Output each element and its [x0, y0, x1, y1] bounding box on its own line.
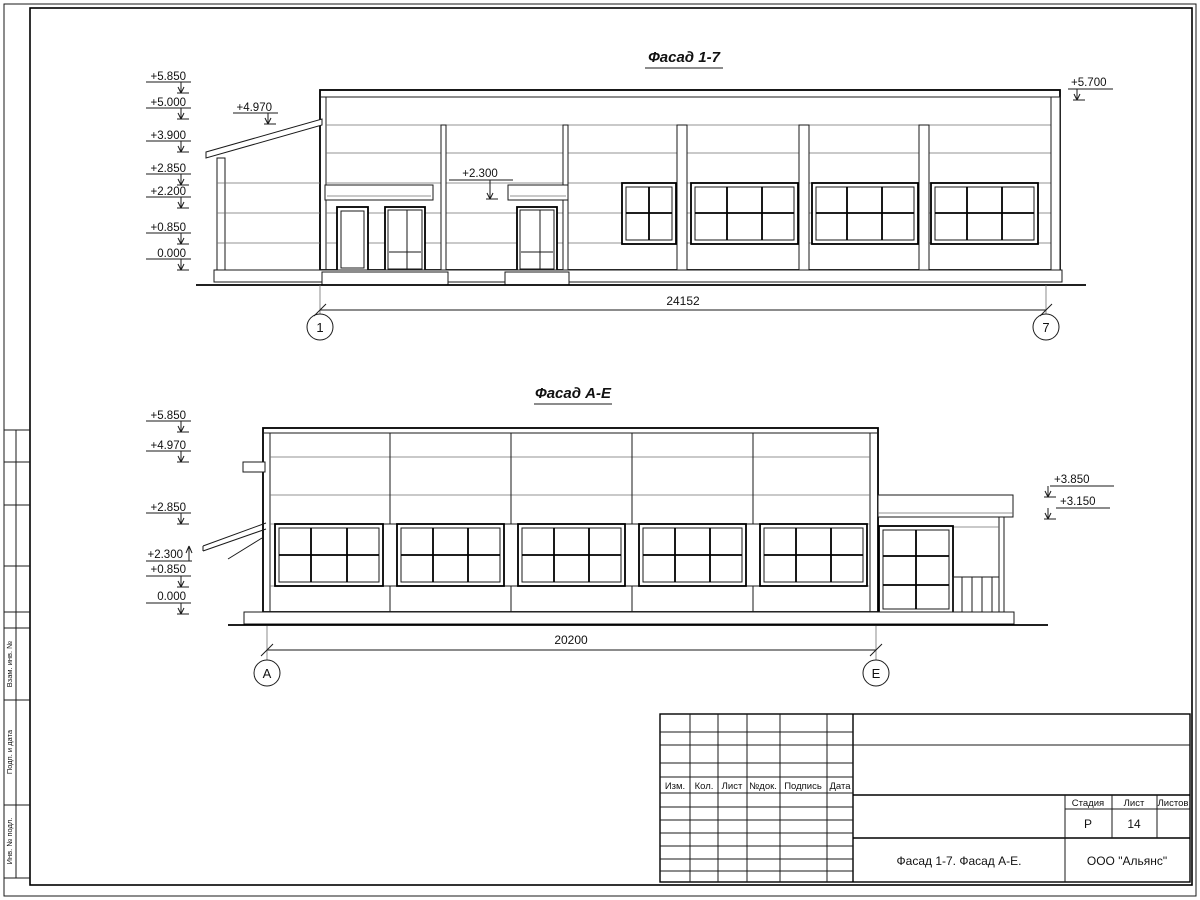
strip-label-vzam: Взам. инв. № [5, 641, 14, 687]
cad-canvas: Взам. инв. № Подп. и дата Инв. № подл. Ф… [0, 0, 1200, 900]
stamp-stage-value: Р [1084, 817, 1092, 831]
stamp-sheet-value: 14 [1127, 817, 1141, 831]
stamp-company: ООО "Альянс" [1087, 854, 1167, 868]
frame-attribute-strip: Взам. инв. № Подп. и дата Инв. № подл. [4, 430, 30, 878]
elevation-mark-annex-eave: +3.150 [1060, 496, 1096, 508]
dimension-value: 20200 [554, 633, 588, 647]
facade-a-e-title: Фасад А-Е [535, 385, 612, 402]
stamp-sheets-label: Листов [1158, 798, 1189, 809]
axis-bubble-a: А [263, 666, 272, 681]
facade-1-7-drawing [196, 90, 1086, 285]
facade-a-e-windows [275, 524, 867, 586]
elevation-mark: +5.850 [151, 410, 187, 422]
elevation-mark: +5.850 [151, 71, 187, 83]
elevation-mark-door: +2.300 [462, 168, 498, 180]
title-block: Изм. Кол. Лист №док. Подпись Дата Стадия… [660, 714, 1190, 882]
stamp-col-dok: №док. [749, 781, 777, 792]
drawing-sheet: Взам. инв. № Подп. и дата Инв. № подл. Ф… [0, 0, 1200, 900]
strip-label-podp: Подп. и дата [5, 729, 14, 774]
elevation-mark-annex-roof: +3.850 [1054, 474, 1090, 486]
door-single [337, 207, 368, 272]
elevation-mark: +2.200 [151, 186, 187, 198]
elevation-mark: +0.850 [151, 222, 187, 234]
stamp-stage-label: Стадия [1072, 798, 1104, 809]
axis-bubble-1: 1 [316, 320, 323, 335]
facade-a-e-drawing [203, 428, 1048, 625]
axis-bubble-7: 7 [1042, 320, 1049, 335]
facade-a-e: Фасад А-Е [146, 385, 1114, 686]
elevation-mark: 0.000 [157, 591, 186, 603]
stamp-col-data: Дата [829, 781, 851, 792]
stamp-col-podpis: Подпись [784, 781, 822, 792]
elevation-mark-right: +5.700 [1071, 77, 1107, 89]
facade-a-e-dimension: 20200 А Е [254, 626, 889, 686]
elevation-mark-roof: +4.970 [237, 102, 273, 114]
elevation-mark: +2.850 [151, 163, 187, 175]
elevation-mark: 0.000 [157, 248, 186, 260]
elevation-mark: +3.900 [151, 130, 187, 142]
annex [878, 495, 1013, 613]
door-double-2 [517, 207, 557, 272]
stamp-sheet-label: Лист [1124, 798, 1145, 809]
elevation-mark: +5.000 [151, 97, 187, 109]
elevation-mark: +2.300 [148, 549, 184, 561]
elevation-mark: +4.970 [151, 440, 187, 452]
facade-1-7-title: Фасад 1-7 [648, 49, 721, 66]
stamp-col-izm: Изм. [665, 781, 685, 792]
stamp-col-list: Лист [722, 781, 743, 792]
dimension-value: 24152 [666, 294, 700, 308]
stamp-col-kol: Кол. [695, 781, 714, 792]
elevation-mark: +2.850 [151, 502, 187, 514]
stamp-drawing-title: Фасад 1-7. Фасад А-Е. [897, 854, 1022, 868]
elevation-mark: +0.850 [151, 564, 187, 576]
axis-bubble-e: Е [872, 666, 881, 681]
facade-1-7-dimension: 24152 1 7 [307, 285, 1059, 340]
facade-1-7: Фасад 1-7 [146, 49, 1113, 340]
door-double-1 [385, 207, 425, 272]
strip-label-inv: Инв. № подл. [5, 818, 14, 865]
